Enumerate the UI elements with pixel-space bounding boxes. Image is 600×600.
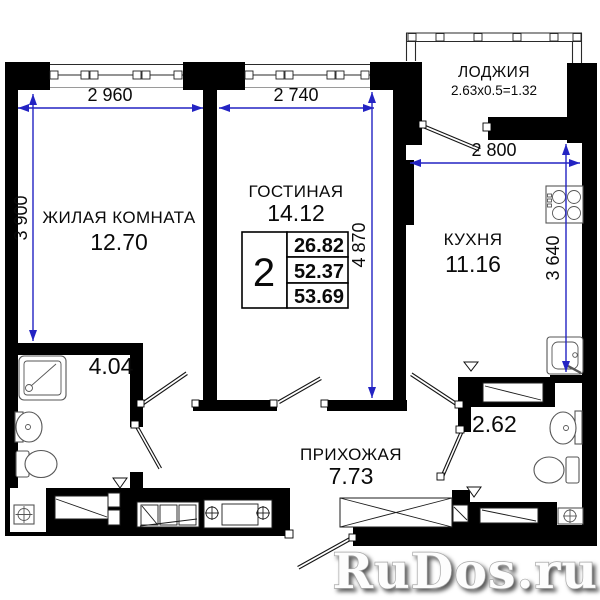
total-area-loggia-value: 53.69 bbox=[294, 286, 344, 308]
floor-drain bbox=[14, 505, 34, 524]
sink bbox=[550, 411, 582, 444]
loggia-area-formula: 2.63x0.5=1.32 bbox=[451, 83, 537, 98]
toilet bbox=[16, 451, 57, 478]
watermark-logo: RuDos.ru bbox=[332, 542, 598, 600]
room-area-bath1: 4.04 bbox=[89, 353, 134, 379]
pier-block bbox=[108, 493, 120, 507]
corner-cabinet bbox=[453, 505, 468, 522]
summary-table: 2 26.82 52.37 53.69 bbox=[242, 232, 348, 308]
room-name-living2: ГОСТИНАЯ bbox=[249, 182, 344, 201]
floor-plan-canvas: 2 960 2 740 2 800 3 900 4 870 3 640 ЖИЛА… bbox=[0, 0, 600, 600]
sink bbox=[15, 412, 42, 442]
living-area-value: 26.82 bbox=[294, 235, 344, 257]
floor-plan: 2 960 2 740 2 800 3 900 4 870 3 640 ЖИЛА… bbox=[0, 0, 600, 600]
room-area-kitchen: 11.16 bbox=[445, 251, 501, 277]
room-area-living1: 12.70 bbox=[90, 229, 148, 255]
dim-label: 2 740 bbox=[273, 85, 318, 105]
dim-living2-width bbox=[219, 104, 374, 112]
toilet bbox=[534, 457, 579, 483]
room-name-hall: ПРИХОЖАЯ bbox=[300, 445, 402, 464]
room-name-living1: ЖИЛАЯ КОМНАТА bbox=[42, 208, 195, 227]
room-area-bath2: 2.62 bbox=[472, 411, 517, 437]
pier-block bbox=[108, 510, 120, 525]
bath1-door bbox=[136, 427, 162, 469]
duct-shaft bbox=[483, 383, 543, 402]
bath2-door bbox=[441, 430, 464, 477]
rooms-count: 2 bbox=[253, 251, 275, 295]
stove bbox=[546, 186, 583, 223]
appliance-unit bbox=[204, 500, 272, 528]
entry-wardrobe bbox=[340, 498, 452, 527]
room-area-hall: 7.73 bbox=[329, 463, 374, 489]
living1-door bbox=[141, 372, 188, 406]
dim-living2-height bbox=[368, 92, 376, 398]
room-name-kitchen: КУХНЯ bbox=[444, 230, 503, 249]
floor-drain bbox=[558, 508, 583, 524]
room-area-living2: 14.12 bbox=[267, 200, 325, 226]
total-area-value: 52.37 bbox=[294, 261, 344, 283]
living2-door bbox=[278, 377, 322, 404]
room-name-loggia: ЛОДЖИЯ bbox=[458, 64, 530, 81]
dim-label: 2 960 bbox=[87, 85, 132, 105]
dim-label: 4 870 bbox=[349, 222, 369, 267]
drawer-unit bbox=[137, 502, 199, 527]
dim-kitchen-width bbox=[410, 159, 580, 167]
dim-label: 3 640 bbox=[543, 235, 563, 280]
dim-label: 2 800 bbox=[471, 140, 516, 160]
dim-living1-width bbox=[18, 104, 203, 112]
loggia-glazing bbox=[406, 33, 582, 63]
kitchen-door bbox=[411, 373, 460, 407]
dim-label: 3 900 bbox=[11, 195, 31, 240]
cabinet bbox=[55, 496, 108, 519]
shower-tray bbox=[19, 356, 66, 400]
